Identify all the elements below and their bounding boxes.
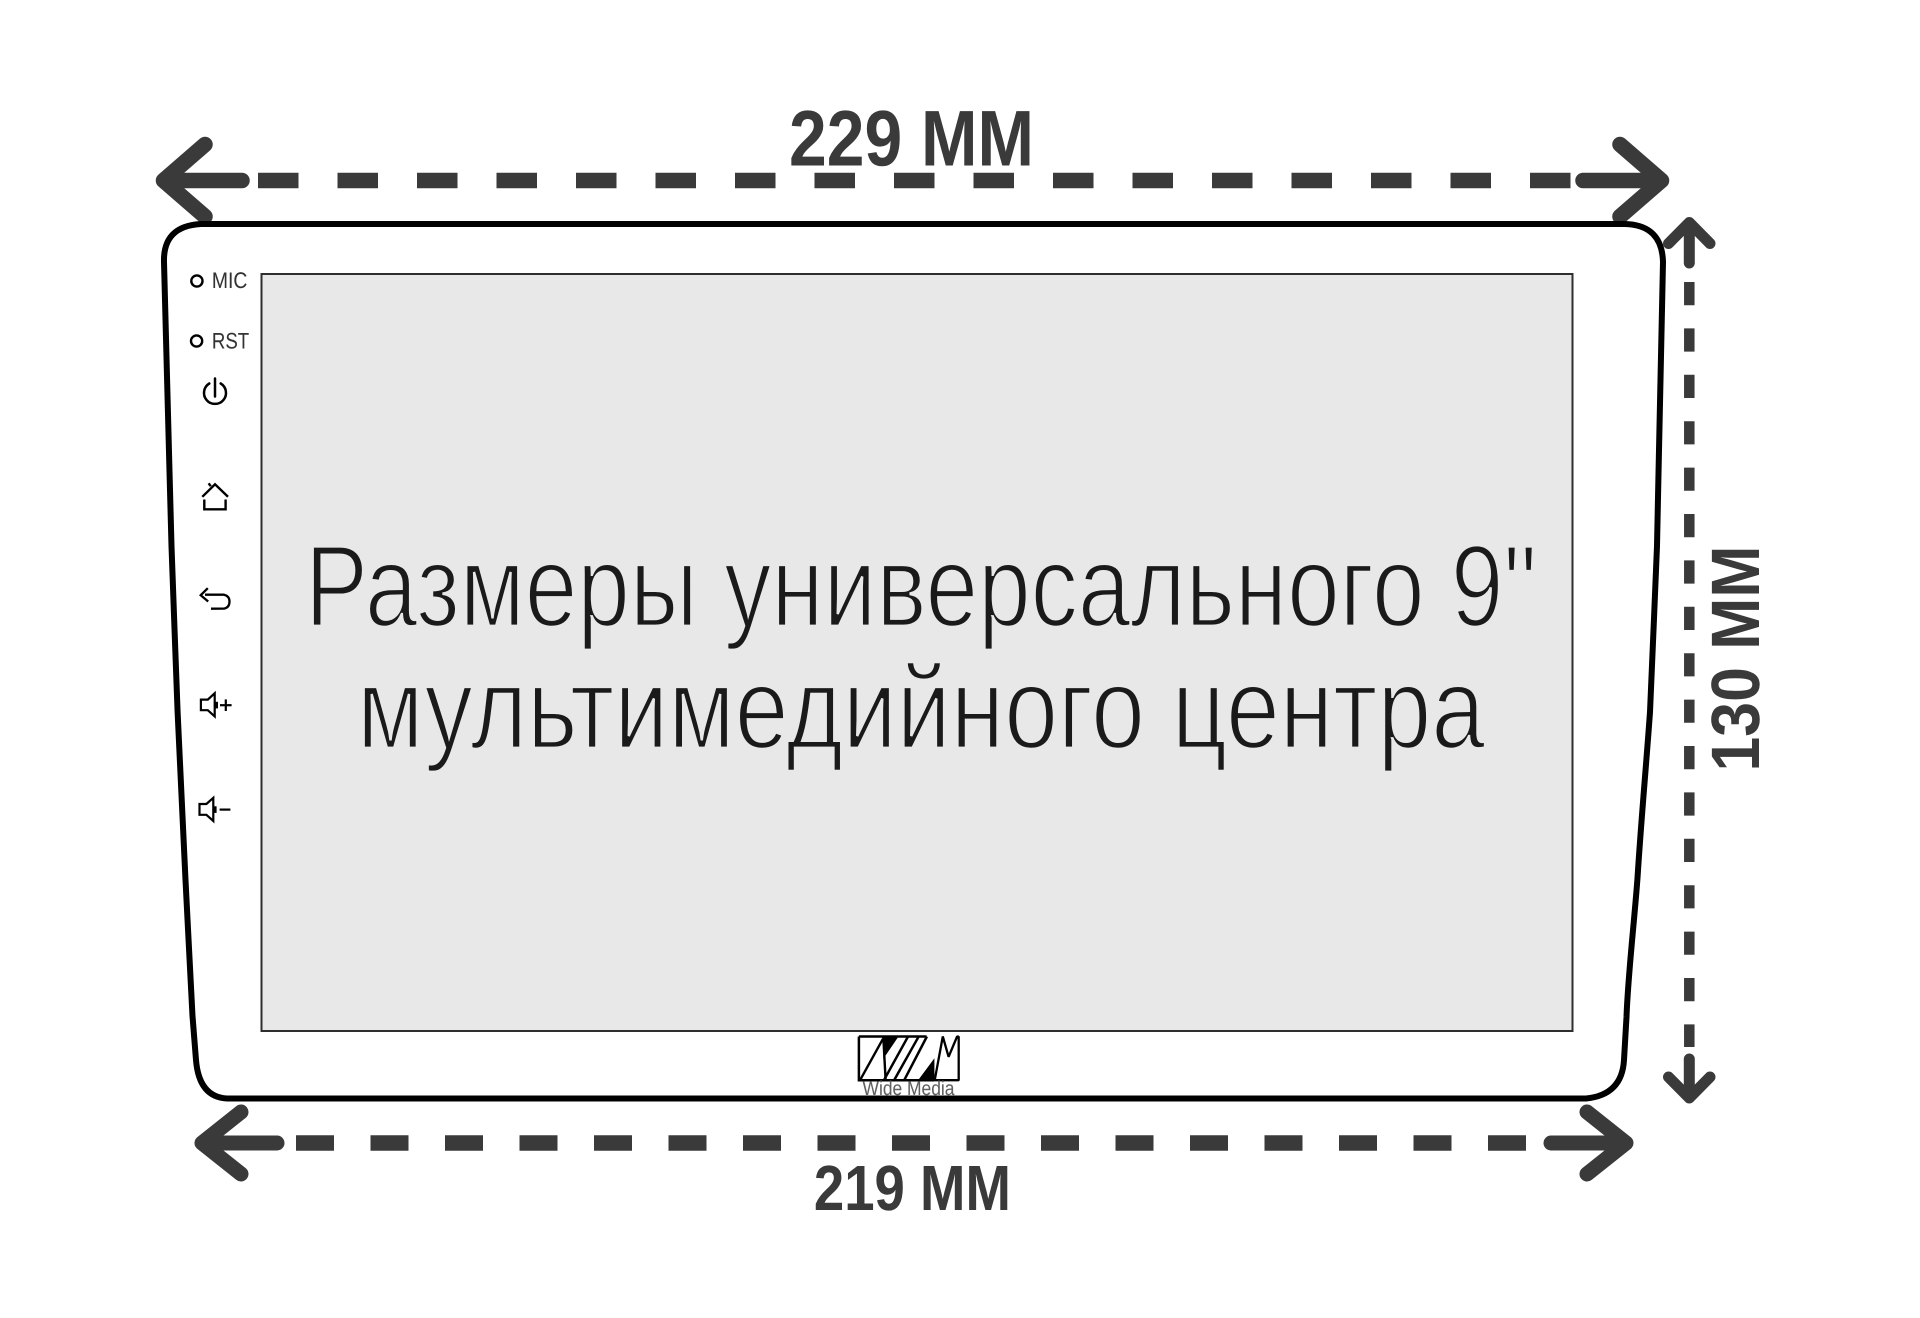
svg-text:MIC: MIC [212,268,248,293]
svg-text:229 MM: 229 MM [789,93,1034,182]
svg-text:Размеры универсального 9": Размеры универсального 9" [305,521,1537,651]
svg-text:219 MM: 219 MM [814,1152,1011,1224]
svg-text:RST: RST [212,328,250,353]
svg-text:130 MM: 130 MM [1697,546,1774,772]
svg-text:Wide Media: Wide Media [863,1078,956,1100]
svg-text:мультимедийного центра: мультимедийного центра [357,643,1485,773]
